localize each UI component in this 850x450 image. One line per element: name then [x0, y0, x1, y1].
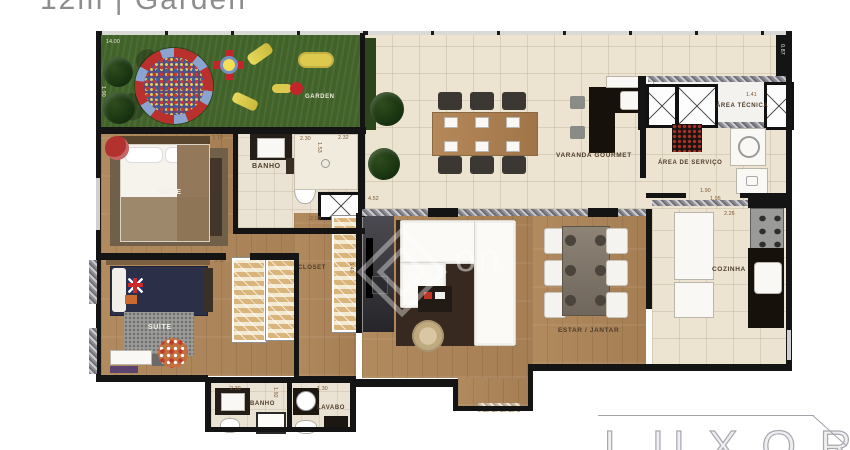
wall	[428, 208, 458, 217]
wall	[205, 380, 211, 432]
closet-label: CLOSET	[298, 265, 326, 271]
measurement: 2.30	[230, 386, 241, 392]
cozinha-sill	[652, 200, 748, 206]
measurement: 4.52	[368, 196, 379, 202]
wall	[640, 128, 646, 178]
wall	[528, 366, 533, 411]
wall	[638, 76, 646, 130]
measurement: 1.90	[700, 188, 711, 194]
dining-chair	[438, 156, 462, 174]
playground-mosaic	[144, 57, 204, 115]
garden-label: GARDEN	[305, 94, 335, 100]
jantar-table	[562, 226, 610, 316]
wall	[646, 209, 652, 309]
tree-icon	[368, 148, 400, 180]
tree-icon	[103, 92, 135, 124]
measurement: 1.41	[746, 92, 757, 98]
varanda-dining-table	[432, 112, 538, 156]
gourmet-stool	[570, 126, 585, 139]
suite-bottom-label: SUÍTE	[148, 324, 172, 331]
cozinha-label: COZINHA	[712, 266, 746, 273]
playground-flower-icon	[135, 48, 213, 124]
planter-strip	[89, 328, 97, 374]
measurement: 2.09	[310, 216, 321, 222]
dining-chair-white	[606, 228, 628, 254]
area-servico-label: ÁREA DE SERVIÇO	[658, 160, 722, 166]
watermark-text: on	[455, 238, 501, 281]
kitchen-counter	[674, 212, 714, 280]
window	[365, 31, 786, 35]
wardrobe	[266, 258, 296, 340]
banho-bottom-sink	[221, 393, 245, 411]
garden-toy-icon	[272, 82, 302, 95]
wall	[294, 260, 299, 376]
planter-strip	[89, 260, 97, 304]
wall	[250, 253, 299, 260]
dining-chair	[438, 92, 462, 110]
window	[787, 330, 791, 360]
suite-top-headboard	[118, 136, 210, 144]
window	[96, 178, 100, 230]
garden-caterpillar-icon	[298, 52, 334, 68]
dining-chair	[470, 92, 494, 110]
wall	[350, 380, 356, 432]
dining-chair	[470, 156, 494, 174]
wall	[453, 379, 458, 409]
wall	[360, 33, 365, 129]
measurement: 2.30	[300, 136, 311, 142]
suite-bottom-bench	[204, 268, 213, 312]
floral-pouf	[158, 338, 188, 368]
tree-icon	[370, 92, 404, 126]
suite-top-bench	[210, 158, 222, 236]
luxor-roofline	[598, 415, 814, 416]
floor-plan-screenshot: 12m | Garden	[0, 0, 850, 450]
tree-icon	[103, 57, 133, 87]
measurement: 2.26	[724, 211, 735, 217]
measurement: 1.92	[272, 387, 278, 398]
measurement: 3.40	[348, 262, 354, 273]
measurement: 1.53	[316, 142, 322, 153]
dining-chair-white	[606, 260, 628, 286]
entry-floor	[458, 378, 528, 406]
wall	[294, 376, 356, 383]
wall	[205, 427, 356, 432]
wall	[233, 228, 365, 234]
measurement: 1.30	[317, 386, 328, 392]
wardrobe	[232, 258, 266, 342]
suite-top-armchair	[105, 136, 129, 160]
wall	[352, 379, 458, 387]
banho-top-sink	[257, 138, 285, 158]
pouf	[412, 320, 444, 352]
wall	[453, 406, 533, 411]
wall	[287, 383, 292, 430]
suite-top-label: SUÍTE	[158, 189, 182, 196]
stove-icon	[750, 208, 784, 250]
shaft-x-icon	[646, 84, 678, 128]
shaft-x-icon	[676, 84, 718, 128]
kitchen-sink	[754, 262, 782, 294]
banho-top-shower	[294, 134, 358, 190]
wall	[748, 198, 792, 208]
luxor-watermark: LUXOR	[584, 404, 850, 450]
floor-plan: GARDEN 14.00 1.90 SUÍTE 3.10 BANHO 2.30 …	[0, 0, 850, 450]
area-tecnica-label: ÁREA TÉCNICA	[716, 103, 768, 109]
lavabo-round-sink	[296, 391, 316, 411]
wall	[528, 364, 792, 371]
wall	[96, 375, 208, 382]
grill-icon	[672, 124, 702, 152]
playground-cross-icon	[214, 50, 244, 80]
dining-chair	[502, 156, 526, 174]
wall	[358, 127, 365, 217]
suite-bottom-bed	[110, 266, 208, 316]
wall	[233, 133, 238, 229]
wall	[646, 193, 686, 198]
wall	[96, 253, 226, 260]
desk-items	[110, 366, 138, 373]
dining-chair	[502, 92, 526, 110]
laundry-tank	[736, 168, 768, 194]
luxor-brand-text: LUXOR	[604, 422, 850, 450]
uk-flag-pillow-icon	[128, 278, 143, 293]
dining-chair-white	[606, 292, 628, 318]
fridge	[674, 282, 714, 318]
wall	[588, 208, 618, 217]
window	[99, 31, 365, 35]
banho-bottom-label: BANHO	[250, 401, 275, 407]
wall	[96, 127, 366, 134]
varanda-label: VARANDA GOURMET	[556, 152, 632, 159]
measurement: 1.95	[710, 196, 721, 202]
measurement: 3.10	[212, 135, 223, 141]
wall	[96, 31, 101, 133]
measurement: 14.00	[106, 39, 120, 45]
measurement: 0.87	[779, 44, 785, 55]
washer-icon	[730, 128, 766, 166]
lavabo-label: LAVABO	[317, 405, 345, 411]
desk	[110, 350, 152, 365]
estar-label: ESTAR / JANTAR	[558, 327, 619, 334]
measurement: 2.32	[338, 135, 349, 141]
gourmet-stool	[570, 96, 585, 109]
banho-top-label: BANHO	[252, 163, 281, 170]
